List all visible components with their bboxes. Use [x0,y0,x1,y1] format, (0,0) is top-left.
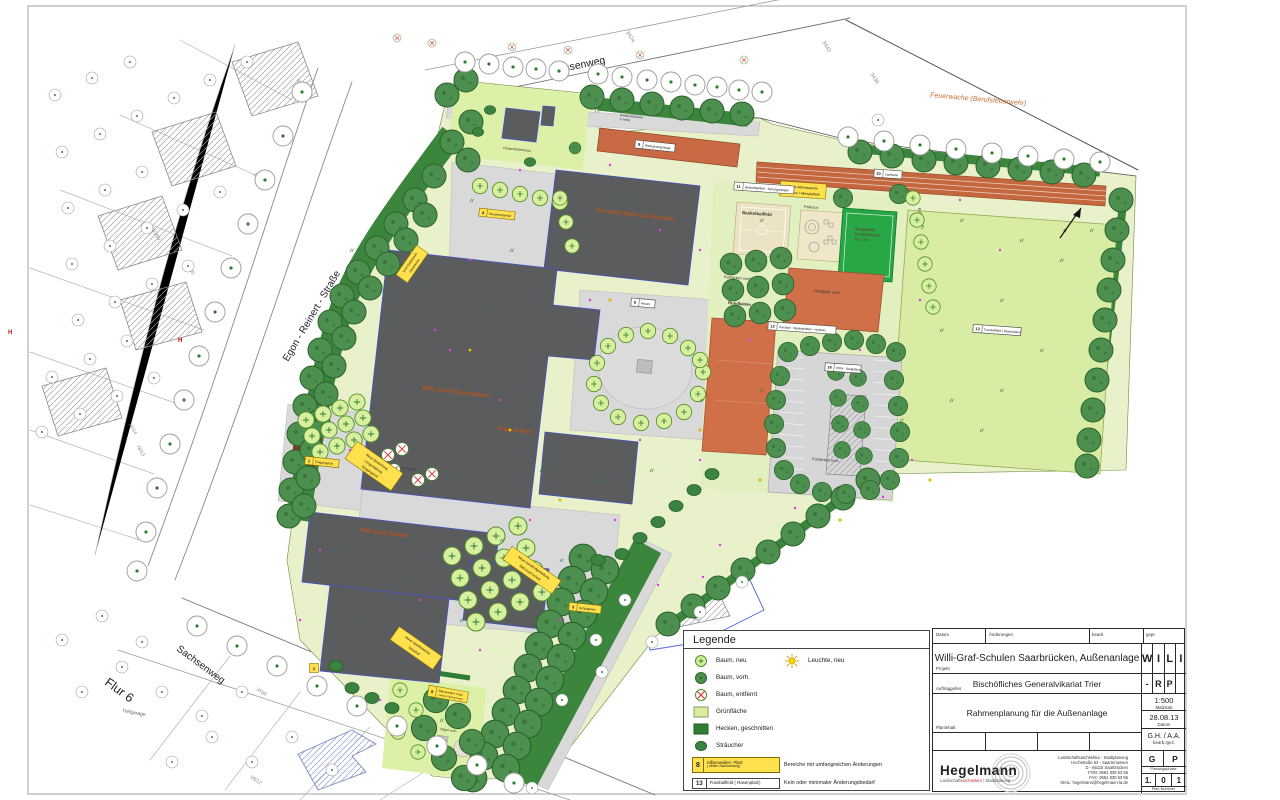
legend-item-label: Baum, neu [716,657,746,664]
legend-box-number: 13 [693,779,707,788]
svg-text:98/12: 98/12 [249,775,263,787]
legend-item-label: Sträucher [716,742,743,749]
svg-text:3443: 3443 [820,40,832,54]
code-letter: L [1164,644,1175,673]
plan-content-label: Planinhalt [936,725,955,730]
col-gepr: gepr. [1146,632,1156,637]
client-label: Auftraggeber [936,686,961,691]
scale-value: 1:500 [1142,694,1186,705]
legend-change-box-white: 13 Fussballfeld ( Rasenplatz) [692,778,780,789]
tree-existing-icon [694,671,708,685]
label-tiefgarage: Tiefgarage [122,708,147,718]
col-datum: Datum [936,632,949,637]
code-letter: - [1141,674,1152,693]
street-sachsenweg: Sachsenweg [174,644,227,687]
editor-value: G.H. / A.A. [1142,729,1186,740]
project-label: Projekt [936,666,950,671]
editor-label: bearb./gez. [1142,740,1186,745]
plan-box-atrium: 5 Atrium [631,298,656,308]
scale-label: Maßstab [1142,705,1186,710]
firm-name: Hegelmann [940,763,1017,778]
code-letter: I [1152,644,1163,673]
legend-item-label: Hecken, geschnitten [716,725,773,732]
green-area-icon [693,706,709,718]
code-letter: I [1175,644,1186,673]
plan-content: Rahmenplanung für die Außenanlage [933,694,1141,733]
date-label: Datum [1142,722,1186,727]
firm-subtitle: Landschaftsarchitektur | Stadtplanung [940,778,1010,783]
plannr-label: Plan-Nummer [1141,786,1186,793]
date-value: 28.08.13 [1142,711,1186,722]
legend-item-label: Baum, entfernt [716,691,757,698]
svg-text:Atrium: Atrium [641,301,651,306]
plannr-digit: 0 [1155,774,1170,786]
building-gym-south [539,432,638,504]
hydrant-mark: H [8,330,12,336]
project-title: Willi-Graf-Schulen Saarbrücken, Außenanl… [933,644,1141,674]
light-new-icon [784,653,800,669]
legend-box-subtext: ( neben Sachsenweg) [707,765,743,769]
label-parkour: Parkour [804,204,819,210]
site-plan-sheet: Städt. Kindergarten Hessenweg Egon - Rei… [0,0,1280,800]
building-hausmeisterhaus [502,108,540,142]
plan-box-2: 2 [310,664,319,673]
legend-item-label: Grünfläche [716,708,747,715]
code-letter: W [1141,644,1152,673]
svg-text:3424: 3424 [624,30,635,44]
parkour-area [797,210,846,262]
hydrant-mark: H [178,338,182,344]
legend-change-box-yellow: 8 Silberweiden- Platz ( neben Sachsenweg… [692,757,780,773]
firm-contact: Landschaftsarchitektur - Stadtplanung Ho… [1058,755,1128,785]
shrub-icon [694,739,708,753]
code-letter: P [1164,674,1175,693]
plannr-digit: 1 [1171,774,1186,786]
legend-change-desc: Kein oder minimaler Änderungsbedarf [784,780,875,786]
plannr-digit: 1. [1141,774,1155,786]
client: Bischöfliches Generalvikariat Trier [933,674,1141,694]
legend-box-text: Fussballfeld ( Rasenplatz) [710,781,761,786]
plan-box-laufbahn: 10 Laufbahn [874,169,902,179]
legend-item-label: Baum, vorh. [716,674,750,681]
svg-text:78/13: 78/13 [134,444,146,458]
legend: Legende Baum, neu Baum, vorh. Baum, entf… [683,630,930,791]
tree-new-icon [694,654,708,668]
svg-text:3436: 3436 [868,72,880,86]
col-aenderungen: Änderungen [989,632,1013,637]
hedge-icon [693,723,709,735]
code-letter [1175,674,1186,693]
legend-change-desc: Bereiche mit umfangreichen Änderungen [784,762,882,768]
minispielfeld [838,208,897,282]
title-block: Datum Änderungen bearb. gepr. Willi-Graf… [932,628,1185,792]
label-flur6: Flur 6 [102,675,136,705]
col-bearb: bearb. [1092,632,1104,637]
tree-removed-icon [694,688,708,702]
label-feuerwache: Feuerwache (Berufsfeuerwehr) [930,92,1027,107]
code-letter: R [1152,674,1163,693]
legend-item-label: Leuchte, neu [808,657,844,664]
phase-label: Planungsphase [1141,766,1186,773]
legend-title: Legende [684,631,929,649]
phase-letter: G [1141,751,1163,766]
phase-letter: P [1163,751,1186,766]
legend-box-number: 8 [693,758,704,772]
